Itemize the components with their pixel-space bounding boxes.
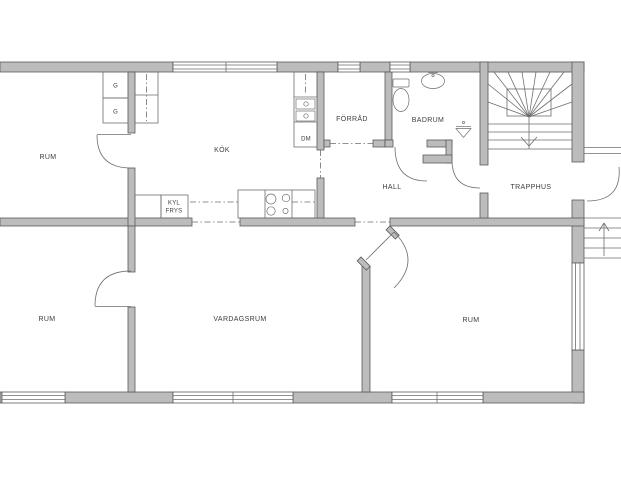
door-badrum (395, 147, 427, 181)
door-rum-bottom-right (366, 232, 408, 288)
washbasin-symbol (422, 73, 445, 89)
walls (0, 62, 584, 403)
room-label-kok: KÖK (214, 146, 230, 154)
door-building-entrance (587, 167, 619, 201)
room-label-hall: HALL (383, 184, 402, 191)
window-rum-right-wall (572, 263, 584, 350)
kitchen-fixtures (103, 72, 317, 218)
stove-burner (282, 194, 290, 202)
room-label-trapphus: TRAPPHUS (511, 184, 552, 191)
wall-openings (192, 144, 390, 223)
window-kok (173, 62, 277, 72)
window-rum-bottom-right (392, 392, 483, 403)
room-label-rum-bottom-left: RUM (39, 316, 56, 323)
door-entry-hall (452, 160, 480, 188)
window-rum-bottom-left (2, 392, 65, 403)
windows (2, 62, 584, 403)
floorplan-page: RUM KÖK FÖRRÅD BADRUM HALL TRAPPHUS RUM … (0, 0, 621, 480)
stove-burner (266, 194, 276, 204)
door-rum-top-left (97, 135, 131, 169)
kitchen-stove-counter (190, 190, 317, 218)
window-badrum (390, 62, 410, 72)
stair-treads (488, 117, 572, 149)
window-vardagsrum (173, 392, 293, 403)
window-forrad (338, 62, 360, 72)
room-label-forrad: FÖRRÅD (336, 114, 368, 123)
fridge-label: KYL (168, 201, 180, 207)
fridge-freezer-boxes (135, 195, 188, 218)
floorplan-canvas: RUM KÖK FÖRRÅD BADRUM HALL TRAPPHUS RUM … (0, 0, 621, 480)
sink-basin (296, 99, 315, 109)
sink-basin (296, 111, 315, 121)
room-label-badrum: BADRUM (412, 117, 444, 124)
floor-drain-symbol (456, 121, 471, 137)
stair-winders (488, 72, 572, 117)
staircase-symbol (488, 72, 572, 149)
wardrobe-label: G (113, 84, 118, 90)
stove-burner (267, 207, 275, 215)
dishwasher-label: DM (301, 137, 311, 143)
exterior-stairs-symbol (584, 148, 621, 259)
toilet-symbol (393, 79, 409, 112)
room-label-vardagsrum: VARDAGSRUM (213, 316, 266, 323)
kitchen-tall-cabinet (135, 72, 158, 123)
room-label-rum-bottom-right: RUM (463, 317, 480, 324)
bathroom-fixtures (393, 73, 471, 138)
stove-burner (283, 208, 288, 213)
door-rum-bottom-left (95, 271, 131, 307)
wardrobe-label: G (113, 110, 118, 116)
freezer-label: FRYS (166, 209, 183, 215)
up-arrow-icon (599, 223, 609, 256)
room-label-rum-top-left: RUM (40, 154, 57, 161)
